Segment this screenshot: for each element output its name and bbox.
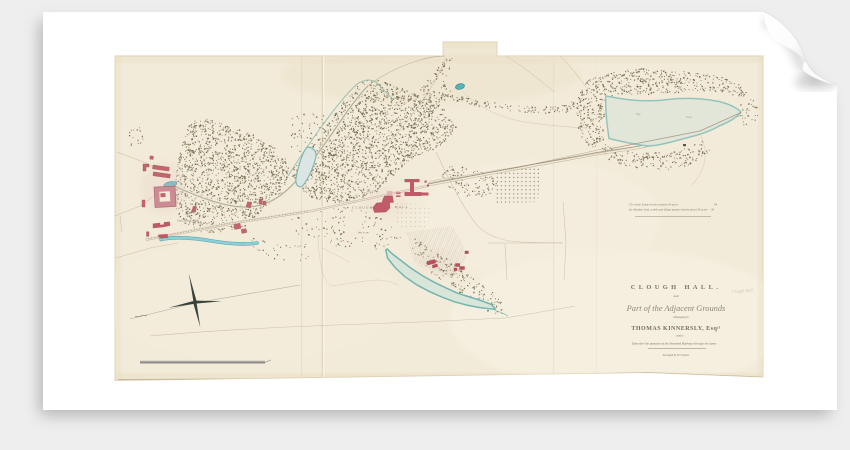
svg-text:Taken for the purpose of the I: Taken for the purpose of the Intended Ra…	[632, 342, 717, 346]
svg-text:The whole Estate herein contai: The whole Estate herein contains 94 acre…	[629, 203, 679, 207]
svg-text:Pool: Pool	[685, 115, 692, 119]
svg-text:the Meadow land, arable and ti: the Meadow land, arable and tillage past…	[629, 208, 715, 212]
svg-text:Gold Mine Colliery: Gold Mine Colliery	[177, 220, 200, 223]
svg-text:THOMAS KINNERSLY, Esqʲᵗ: THOMAS KINNERSLY, Esqʲᵗ	[631, 326, 721, 332]
svg-text:belonging to: belonging to	[673, 315, 689, 319]
svg-text:Surveyed by W. Francis: Surveyed by W. Francis	[663, 354, 689, 357]
svg-text:Part of the Adjacent Grounds: Part of the Adjacent Grounds	[626, 304, 726, 313]
svg-text:CLOUGH: CLOUGH	[352, 206, 373, 210]
svg-text:Big: Big	[636, 112, 641, 116]
svg-text:and: and	[674, 294, 679, 298]
svg-text:Lawn: Lawn	[357, 231, 368, 235]
svg-text:CLOUGH HALL.: CLOUGH HALL.	[631, 284, 722, 291]
svg-text:HALL: HALL	[395, 205, 409, 209]
svg-text:and is: and is	[677, 334, 685, 338]
